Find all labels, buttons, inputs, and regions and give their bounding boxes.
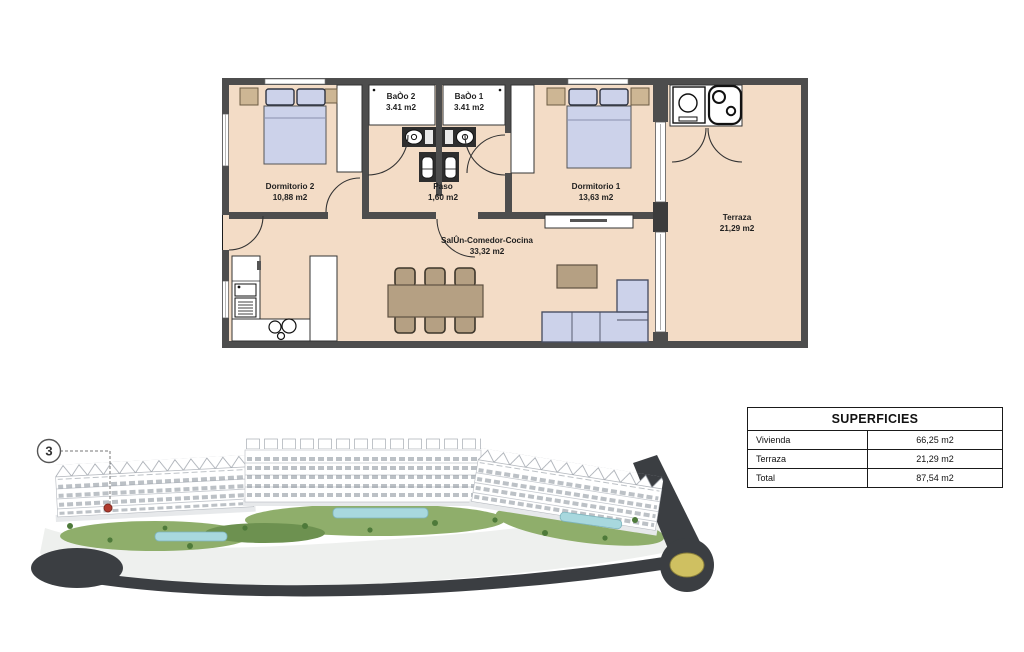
- room-area: 21,29 m2: [720, 224, 755, 233]
- toilet-icon: [419, 152, 436, 182]
- tv-console-icon: [545, 215, 633, 228]
- kitchen-island: [310, 256, 337, 341]
- table-row: Terraza 21,29 m2: [748, 450, 1002, 469]
- row-value: 87,54 m2: [868, 469, 1002, 487]
- room-label: Terraza: [723, 213, 752, 222]
- row-value: 21,29 m2: [868, 450, 1002, 468]
- dining-set-icon: [388, 268, 483, 333]
- row-label: Total: [748, 469, 868, 487]
- room-area: 3.41 m2: [454, 103, 484, 112]
- table-title: SUPERFICIES: [748, 408, 1002, 431]
- wardrobe: [337, 85, 362, 172]
- room-label: Dormitorio 2: [266, 182, 315, 191]
- nightstand: [240, 88, 258, 105]
- room-area: 3.41 m2: [386, 103, 416, 112]
- floor-plan-drawing: Dormitorio 2 10,88 m2 BaÒo 2 3.41 m2 BaÒ…: [222, 78, 808, 348]
- page: Dormitorio 2 10,88 m2 BaÒo 2 3.41 m2 BaÒ…: [0, 0, 1024, 652]
- floor-plan: Dormitorio 2 10,88 m2 BaÒo 2 3.41 m2 BaÒ…: [222, 78, 808, 348]
- sink-icon: [442, 127, 476, 147]
- room-area: 13,63 m2: [579, 193, 614, 202]
- row-label: Terraza: [748, 450, 868, 468]
- room-label: SalÛn-Comedor-Cocina: [441, 234, 533, 245]
- room-label: BaÒo 1: [455, 90, 484, 101]
- laundry-area: [670, 85, 742, 126]
- kitchen-sink-icon: [235, 284, 256, 296]
- building-block-2: [243, 437, 483, 506]
- row-label: Vivienda: [748, 431, 868, 449]
- nightstand: [547, 88, 565, 105]
- fridge-icon: [235, 298, 256, 317]
- boiler-icon: [709, 86, 741, 124]
- unit-badge: 3: [38, 440, 61, 463]
- dormitorio-1-furniture: [511, 85, 649, 173]
- room-label: Dormitorio 1: [572, 182, 621, 191]
- roundabout-center: [670, 553, 704, 577]
- unit-badge-number: 3: [45, 444, 52, 459]
- room-label: BaÒo 2: [387, 90, 416, 101]
- building-block-1: [53, 455, 256, 522]
- coffee-table: [557, 265, 597, 288]
- nightstand: [325, 89, 337, 103]
- superficies-table: SUPERFICIES Vivienda 66,25 m2 Terraza 21…: [747, 407, 1003, 488]
- site-render: 3: [15, 408, 715, 600]
- site-render-drawing: 3: [15, 408, 715, 600]
- room-label: Paso: [433, 182, 453, 191]
- room-area: 1,60 m2: [428, 193, 458, 202]
- nightstand: [631, 88, 649, 105]
- washing-machine-icon: [673, 87, 705, 123]
- row-value: 66,25 m2: [868, 431, 1002, 449]
- wall-junction-block: [653, 202, 668, 232]
- table-row: Total 87,54 m2: [748, 469, 1002, 487]
- table-row: Vivienda 66,25 m2: [748, 431, 1002, 450]
- toilet-icon: [442, 152, 459, 182]
- wardrobe: [511, 85, 534, 173]
- unit-marker: [104, 504, 112, 512]
- room-area: 10,88 m2: [273, 193, 308, 202]
- room-area: 33,32 m2: [470, 247, 505, 256]
